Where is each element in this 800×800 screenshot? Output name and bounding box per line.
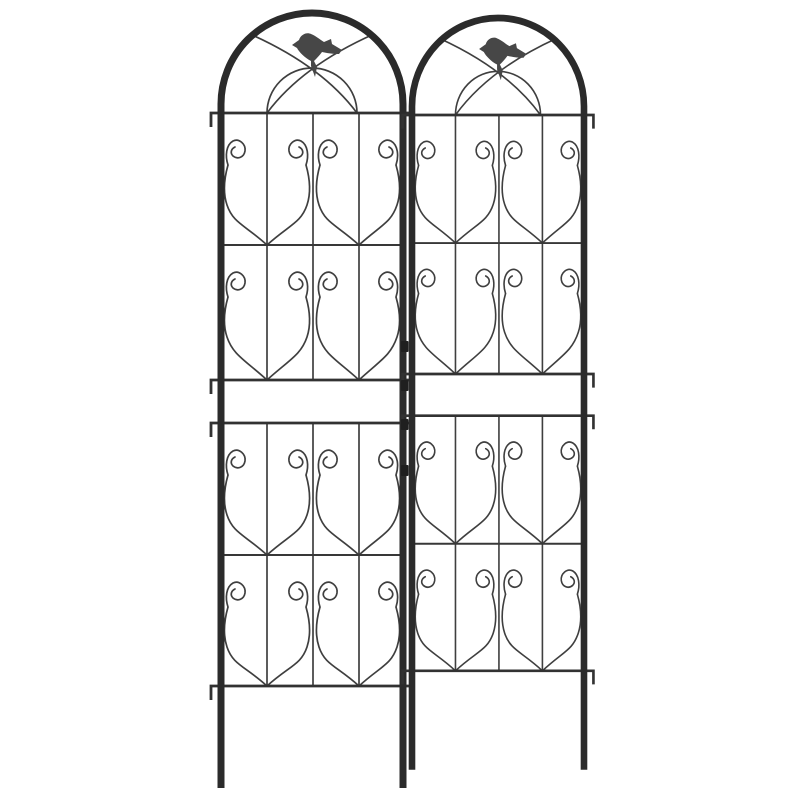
shield-arm-wire [455,165,495,243]
shield-arm-wire [359,297,400,380]
scroll-spiral [318,450,337,475]
connector-clip [401,380,409,391]
scroll-spiral [289,450,308,475]
shield-arm-wire [455,594,495,671]
scroll-spiral [476,141,494,165]
shield-arm-wire [316,165,359,245]
panel-rail-with-hooks [403,115,594,129]
shield-arm-wire [316,297,359,380]
scroll-spiral [226,140,245,165]
shield-arm-wire [455,293,495,374]
shield-arm-wire [542,594,580,671]
panel-rail-with-hooks [211,686,413,700]
shield-arm-wire [224,475,267,555]
scroll-spiral [504,442,522,466]
scroll-spiral [561,570,579,594]
connector-clip [401,465,409,476]
shield-scroll-motif [502,141,581,243]
connector-clip [401,341,409,352]
scroll-spiral [318,272,337,297]
shield-arm-wire [267,165,310,245]
scroll-spiral [476,442,494,466]
scroll-spiral [289,582,308,607]
shield-scroll-motif [316,272,399,380]
shield-arm-wire [502,594,542,671]
shield-scroll-motif [502,570,581,671]
shield-arm-wire [502,293,542,374]
scroll-spiral [379,582,398,607]
shield-arm-wire [316,475,359,555]
scroll-spiral [379,140,398,165]
scroll-spiral [379,272,398,297]
scroll-spiral [417,570,435,594]
shield-arm-wire [542,293,580,374]
shield-scroll-motif [316,140,399,245]
shield-scroll-motif [502,269,581,374]
scroll-spiral [476,269,494,293]
shield-arm-wire [455,466,495,544]
shield-arm-wire [359,607,400,686]
scroll-spiral [289,272,308,297]
scroll-spiral [561,269,579,293]
shield-arm-wire [542,165,580,243]
shield-arm-wire [415,466,455,544]
panel-rail-with-hooks [211,113,413,127]
shield-scroll-motif [502,442,581,544]
shield-arm-wire [415,293,455,374]
shield-scroll-motif [316,582,399,686]
scroll-spiral [318,582,337,607]
shield-arm-wire [267,475,310,555]
scroll-spiral [504,570,522,594]
shield-arm-wire [316,607,359,686]
shield-arm-wire [224,165,267,245]
shield-arm-wire [359,165,400,245]
scroll-spiral [476,570,494,594]
scroll-spiral [289,140,308,165]
trellis-panel-right [403,18,594,770]
scroll-spiral [417,141,435,165]
scroll-spiral [226,272,245,297]
shield-arm-wire [267,607,310,686]
shield-arm-wire [415,594,455,671]
inner-arch-wire [455,71,540,115]
shield-scroll-motif [316,450,399,555]
shield-arm-wire [502,165,542,243]
garden-trellis-product-image [0,0,800,800]
scroll-spiral [504,141,522,165]
shield-arm-wire [542,466,580,544]
scroll-spiral [226,450,245,475]
panel-rail-with-hooks [403,416,594,430]
shield-arm-wire [359,475,400,555]
connector-clip [401,419,409,430]
panel-rail-with-hooks [403,671,594,685]
inner-arch-wire [267,68,357,113]
shield-arm-wire [224,297,267,380]
scroll-spiral [318,140,337,165]
product-photo-canvas [0,0,800,800]
scroll-spiral [417,269,435,293]
trellis-panel-left [211,13,413,788]
scroll-spiral [226,582,245,607]
panel-rail-with-hooks [211,380,413,394]
scroll-spiral [561,141,579,165]
panel-rail-with-hooks [211,423,413,437]
scroll-spiral [504,269,522,293]
shield-arm-wire [502,466,542,544]
scroll-spiral [417,442,435,466]
scroll-spiral [561,442,579,466]
shield-arm-wire [224,607,267,686]
shield-arm-wire [415,165,455,243]
shield-arm-wire [267,297,310,380]
scroll-spiral [379,450,398,475]
panel-rail-with-hooks [403,374,594,388]
